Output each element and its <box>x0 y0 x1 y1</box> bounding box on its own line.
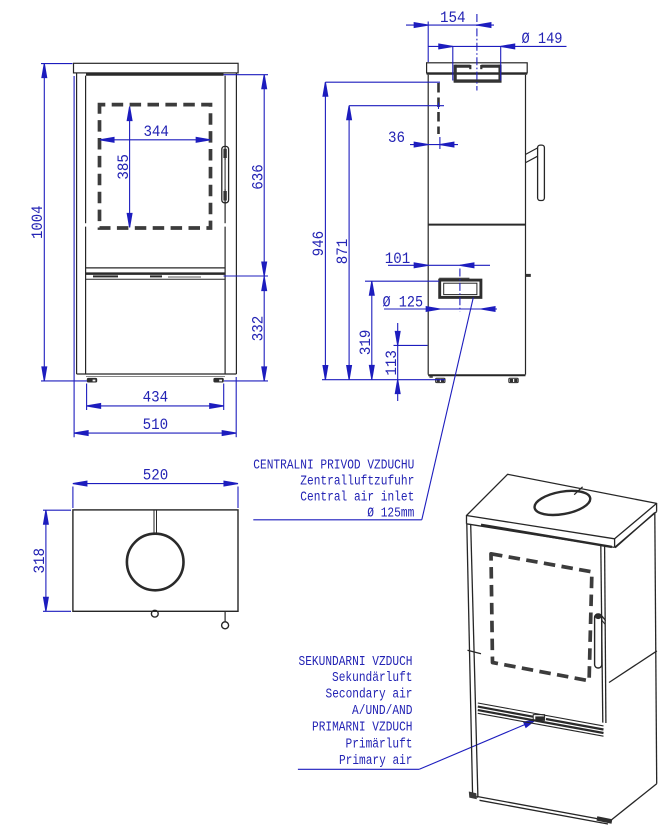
svg-text:PRIMARNI VZDUCH: PRIMARNI VZDUCH <box>312 721 413 736</box>
svg-text:Central air inlet: Central air inlet <box>300 491 414 506</box>
svg-text:520: 520 <box>143 467 169 485</box>
svg-text:SEKUNDARNI VZDUCH: SEKUNDARNI VZDUCH <box>299 655 413 670</box>
svg-text:318: 318 <box>31 548 49 574</box>
svg-text:871: 871 <box>334 239 352 265</box>
svg-text:1004: 1004 <box>29 206 47 240</box>
svg-text:Sekundärluft: Sekundärluft <box>332 671 413 686</box>
svg-text:154: 154 <box>440 9 466 27</box>
svg-text:510: 510 <box>143 416 169 434</box>
svg-text:Primärluft: Primärluft <box>346 738 413 753</box>
svg-text:636: 636 <box>249 164 267 190</box>
svg-text:Ø 149: Ø 149 <box>522 30 563 48</box>
svg-text:946: 946 <box>310 231 328 257</box>
svg-text:CENTRALNI PRIVOD VZDUCHU: CENTRALNI PRIVOD VZDUCHU <box>253 458 414 473</box>
svg-text:Ø 125: Ø 125 <box>383 293 424 311</box>
svg-text:Secondary air: Secondary air <box>326 688 413 703</box>
svg-text:A/UND/AND: A/UND/AND <box>352 704 413 719</box>
svg-text:434: 434 <box>143 389 169 407</box>
svg-text:113: 113 <box>383 350 401 376</box>
svg-text:36: 36 <box>388 129 405 147</box>
svg-text:Zentralluftzufuhr: Zentralluftzufuhr <box>300 474 414 489</box>
svg-text:101: 101 <box>385 250 411 268</box>
svg-text:344: 344 <box>143 123 169 141</box>
svg-text:332: 332 <box>249 316 267 342</box>
svg-text:319: 319 <box>357 330 375 356</box>
svg-text:385: 385 <box>115 154 133 180</box>
svg-text:Primary air: Primary air <box>339 754 413 769</box>
